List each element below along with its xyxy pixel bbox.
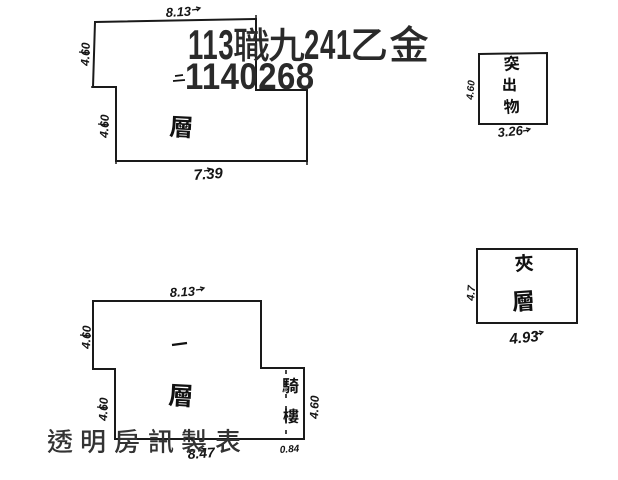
svg-text:0.84: 0.84 [279,444,300,456]
svg-text:4.60: 4.60 [79,325,94,350]
svg-text:4.60: 4.60 [465,79,478,101]
svg-text:4.60: 4.60 [78,42,93,67]
svg-text:4.60: 4.60 [96,397,111,422]
svg-text:4.93: 4.93 [508,328,540,348]
svg-text:4.60: 4.60 [97,114,112,139]
svg-text:8.13: 8.13 [169,284,196,300]
svg-text:8.13: 8.13 [165,4,192,20]
svg-text:4.7: 4.7 [465,284,478,302]
svg-text:1140268: 1140268 [185,56,314,97]
svg-text:4.60: 4.60 [307,395,322,420]
svg-text:3.26: 3.26 [497,123,524,140]
